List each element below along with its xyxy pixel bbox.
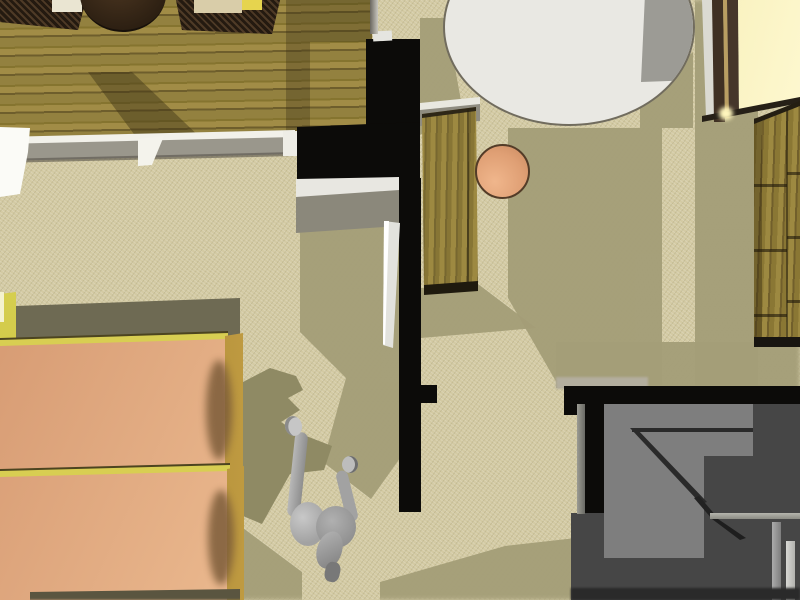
cabinet-left-shading bbox=[754, 118, 762, 346]
parapet-endcap-right bbox=[283, 131, 297, 156]
black-wall-stub bbox=[420, 385, 437, 403]
cabinet-vertical-seam bbox=[786, 108, 788, 346]
cabinet-seam bbox=[754, 184, 787, 187]
black-wall-vertical bbox=[399, 178, 421, 512]
bed-lower-gap-shadow bbox=[208, 490, 234, 585]
room-top-view-render bbox=[0, 0, 800, 600]
cabinet-seam bbox=[754, 249, 787, 252]
chair-cushion-tan bbox=[194, 0, 242, 13]
cabinet-seam bbox=[754, 314, 787, 317]
bed-upper-gap-shadow bbox=[206, 360, 232, 460]
cabinet-seam bbox=[787, 236, 800, 239]
lower-floor-bottom-shade bbox=[571, 588, 800, 600]
sunlit-strip-highlight bbox=[0, 292, 4, 322]
cabinet-bottom-edge bbox=[754, 337, 800, 347]
figure-right-hand bbox=[342, 456, 358, 473]
cabinet-seam bbox=[787, 300, 800, 303]
figure-leg bbox=[323, 561, 342, 584]
window-glow-spot bbox=[719, 107, 733, 120]
wall-corner-post bbox=[370, 0, 378, 34]
black-wall-lower-strip bbox=[585, 404, 604, 513]
wall-edge-highlight bbox=[577, 404, 585, 514]
cabinet-seam bbox=[787, 172, 800, 175]
lower-table-edge bbox=[710, 513, 800, 519]
desk-plank-seam bbox=[467, 110, 469, 288]
round-stool bbox=[475, 144, 530, 199]
chair-cushion-white bbox=[52, 0, 82, 12]
chair-cushion-yellow bbox=[242, 0, 262, 10]
